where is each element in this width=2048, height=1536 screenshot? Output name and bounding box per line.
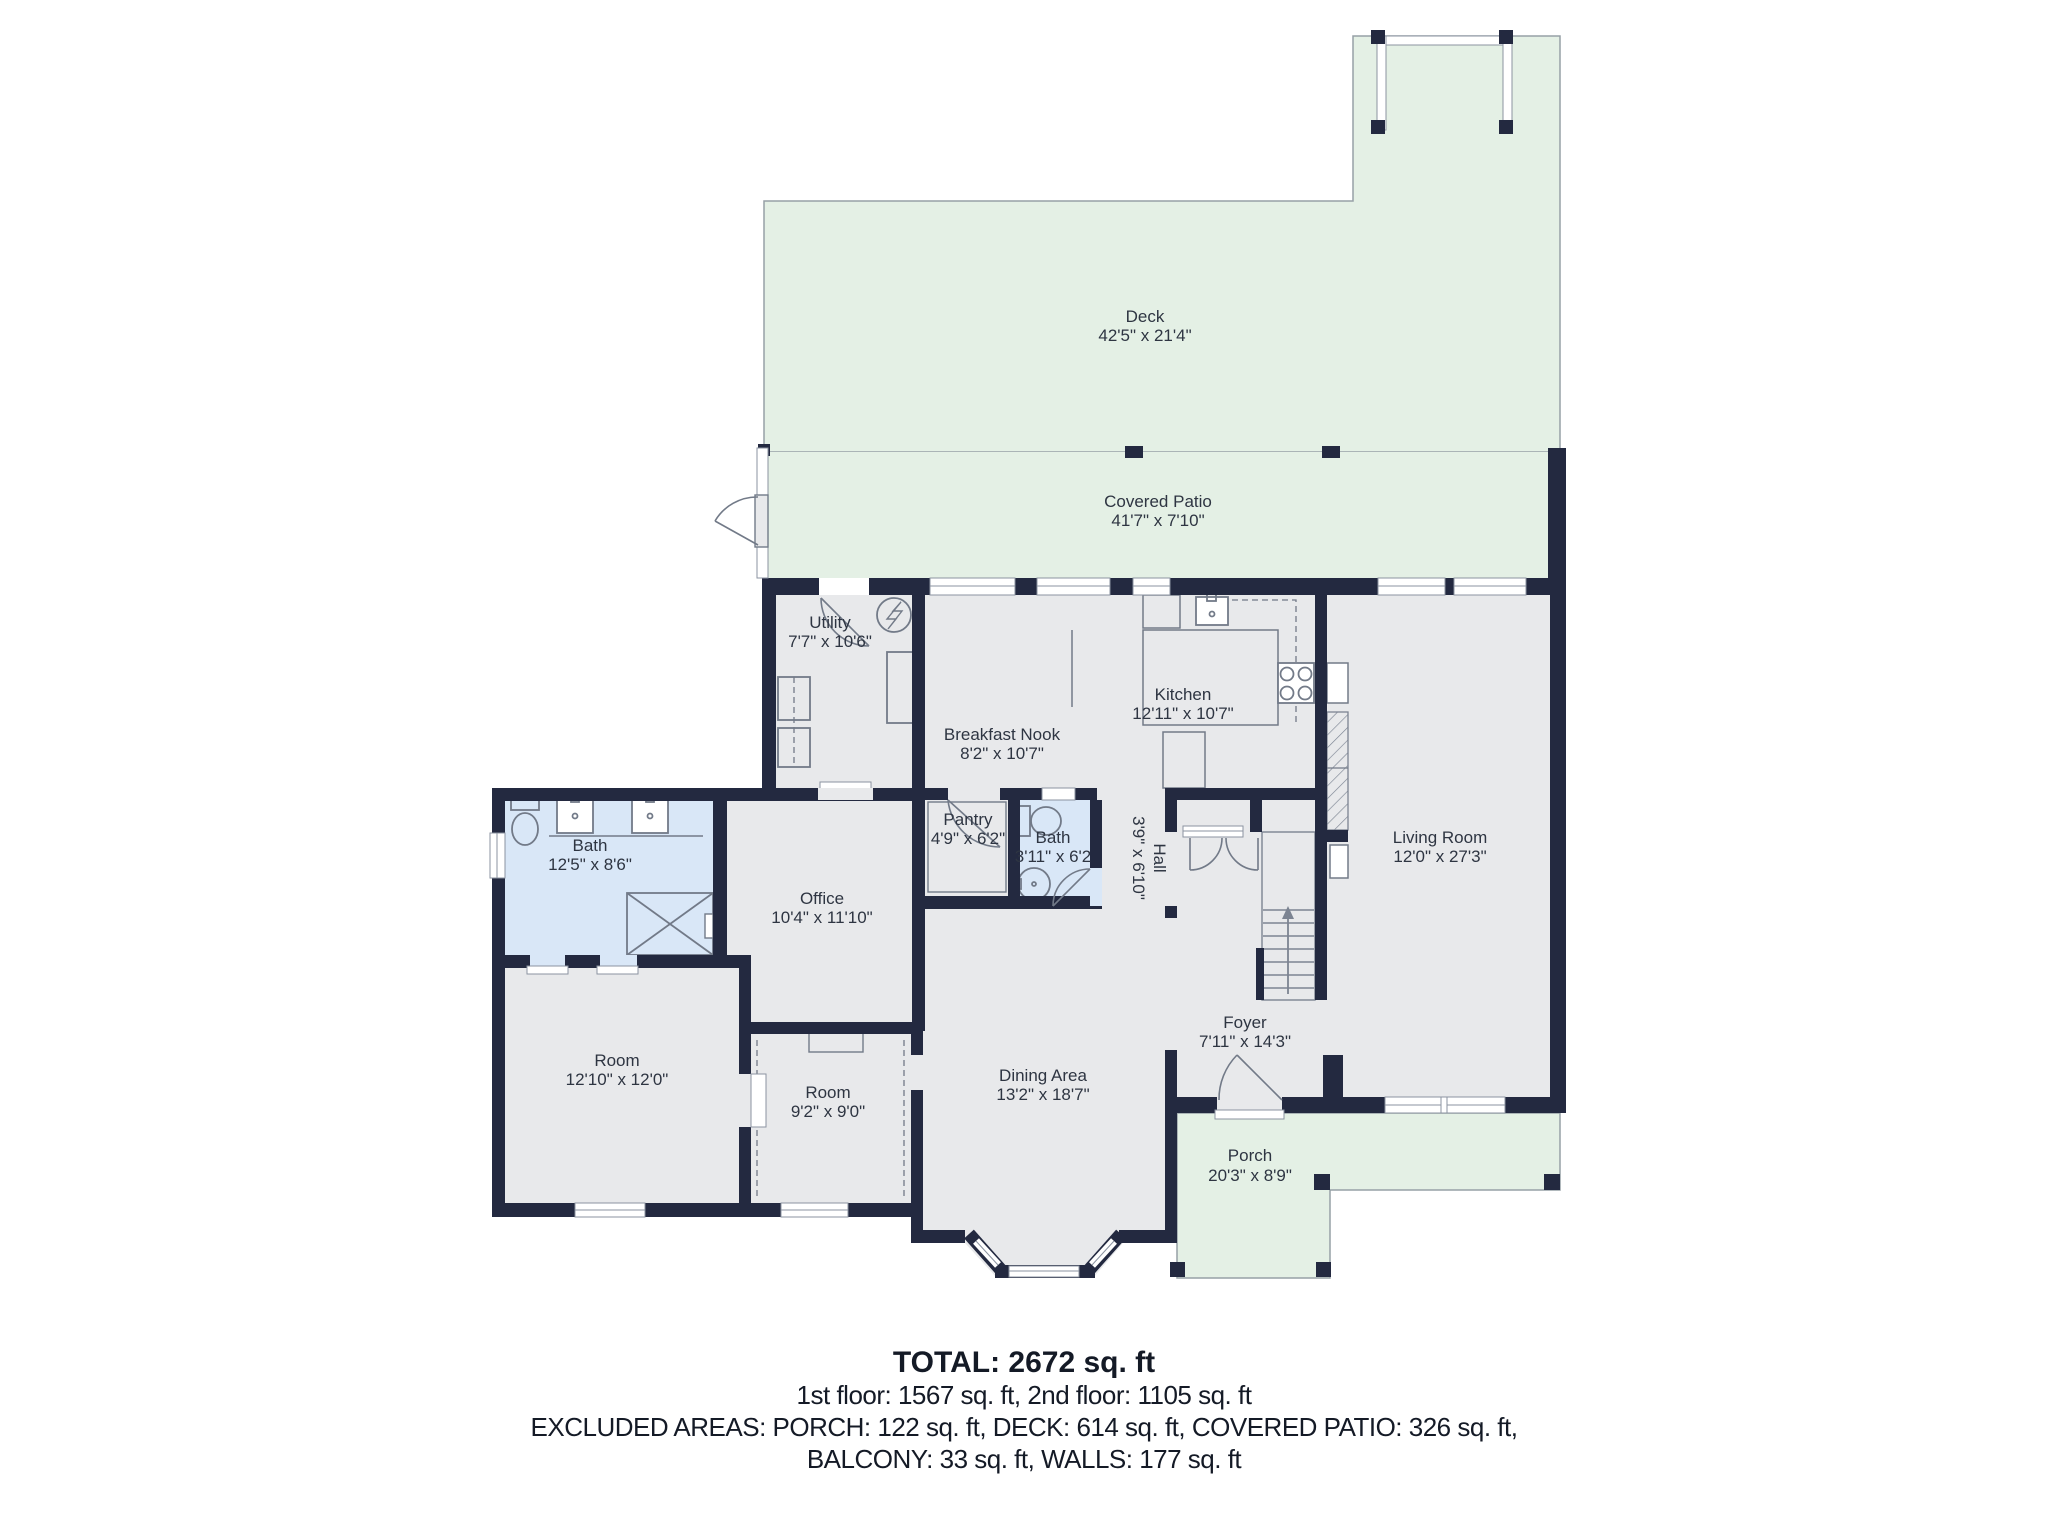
room-label-foyer: Foyer [1223, 1013, 1267, 1032]
door-sill [527, 966, 568, 974]
room-dims-deck: 42'5" x 21'4" [1098, 326, 1191, 345]
door-sill [597, 966, 638, 974]
room-label-bath-small: Bath [1036, 828, 1071, 847]
room-dims-foyer: 7'11" x 14'3" [1199, 1032, 1291, 1051]
room-label-utility: Utility [809, 613, 851, 632]
room-label-living-room: Living Room [1393, 828, 1488, 847]
porch-area [1177, 1113, 1560, 1278]
room-label-bath-main: Bath [573, 836, 608, 855]
room-dims-dining-area: 13'2" x 18'7" [996, 1085, 1089, 1104]
room-dims-pantry: 4'9" x 6'2" [931, 829, 1005, 848]
room-label-deck: Deck [1126, 307, 1165, 326]
window [490, 833, 505, 878]
summary-floors: 1st floor: 1567 sq. ft, 2nd floor: 1105 … [797, 1380, 1253, 1410]
deck-area [764, 36, 1560, 452]
room-dims-kitchen: 12'11" x 10'7" [1132, 704, 1233, 723]
room-label-hall: Hall [1150, 843, 1169, 872]
room-label-kitchen: Kitchen [1155, 685, 1212, 704]
room-dims-covered-patio: 41'7" x 7'10" [1111, 511, 1204, 530]
summary-excluded-2: BALCONY: 33 sq. ft, WALLS: 177 sq. ft [807, 1444, 1243, 1474]
floor-plan-canvas: Deck 42'5" x 21'4" Covered Patio 41'7" x… [0, 0, 2048, 1536]
room-label-porch: Porch [1228, 1146, 1272, 1165]
room-label-covered-patio: Covered Patio [1104, 492, 1212, 511]
room-label-pantry: Pantry [943, 810, 993, 829]
window [1385, 1097, 1505, 1113]
stove-icon [1278, 663, 1314, 703]
door-swing [715, 497, 758, 545]
room-dims-breakfast-nook: 8'2" x 10'7" [960, 744, 1044, 763]
floor-plan-page: Deck 42'5" x 21'4" Covered Patio 41'7" x… [0, 0, 2048, 1536]
room-label-breakfast-nook: Breakfast Nook [944, 725, 1061, 744]
pass-sill [1042, 788, 1075, 800]
room-dims-bath-main: 12'5" x 8'6" [548, 855, 632, 874]
chimney-hatch [1327, 712, 1348, 830]
utility-door-opening [819, 578, 869, 595]
room-label-office: Office [800, 889, 844, 908]
room-label-dining-area: Dining Area [999, 1066, 1087, 1085]
area-summary: TOTAL: 2672 sq. ft 1st floor: 1567 sq. f… [531, 1346, 1518, 1474]
kitchen-sink-icon [1196, 592, 1228, 625]
patio-door-leaf [755, 495, 768, 547]
room-dims-room-large: 12'10" x 12'0" [566, 1070, 669, 1089]
door-panel [751, 1074, 766, 1127]
room-dims-utility: 7'7" x 10'6" [788, 632, 872, 651]
door-sill [1215, 1110, 1284, 1119]
summary-excluded-1: EXCLUDED AREAS: PORCH: 122 sq. ft, DECK:… [531, 1412, 1518, 1442]
room-dims-room-small: 9'2" x 9'0" [791, 1102, 865, 1121]
room-label-room-large: Room [594, 1051, 639, 1070]
room-dims-porch: 20'3" x 8'9" [1208, 1166, 1292, 1185]
room-dims-hall: 3'9" x 6'10" [1129, 816, 1148, 900]
summary-total: TOTAL: 2672 sq. ft [893, 1346, 1155, 1379]
room-dims-living-room: 12'0" x 27'3" [1393, 847, 1486, 866]
room-label-room-small: Room [805, 1083, 850, 1102]
room-dims-office: 10'4" x 11'10" [771, 908, 872, 927]
living-cabinet [1327, 663, 1348, 703]
fireplace-box [1330, 845, 1348, 878]
room-dims-bath-small: 3'11" x 6'2 [1015, 847, 1091, 866]
